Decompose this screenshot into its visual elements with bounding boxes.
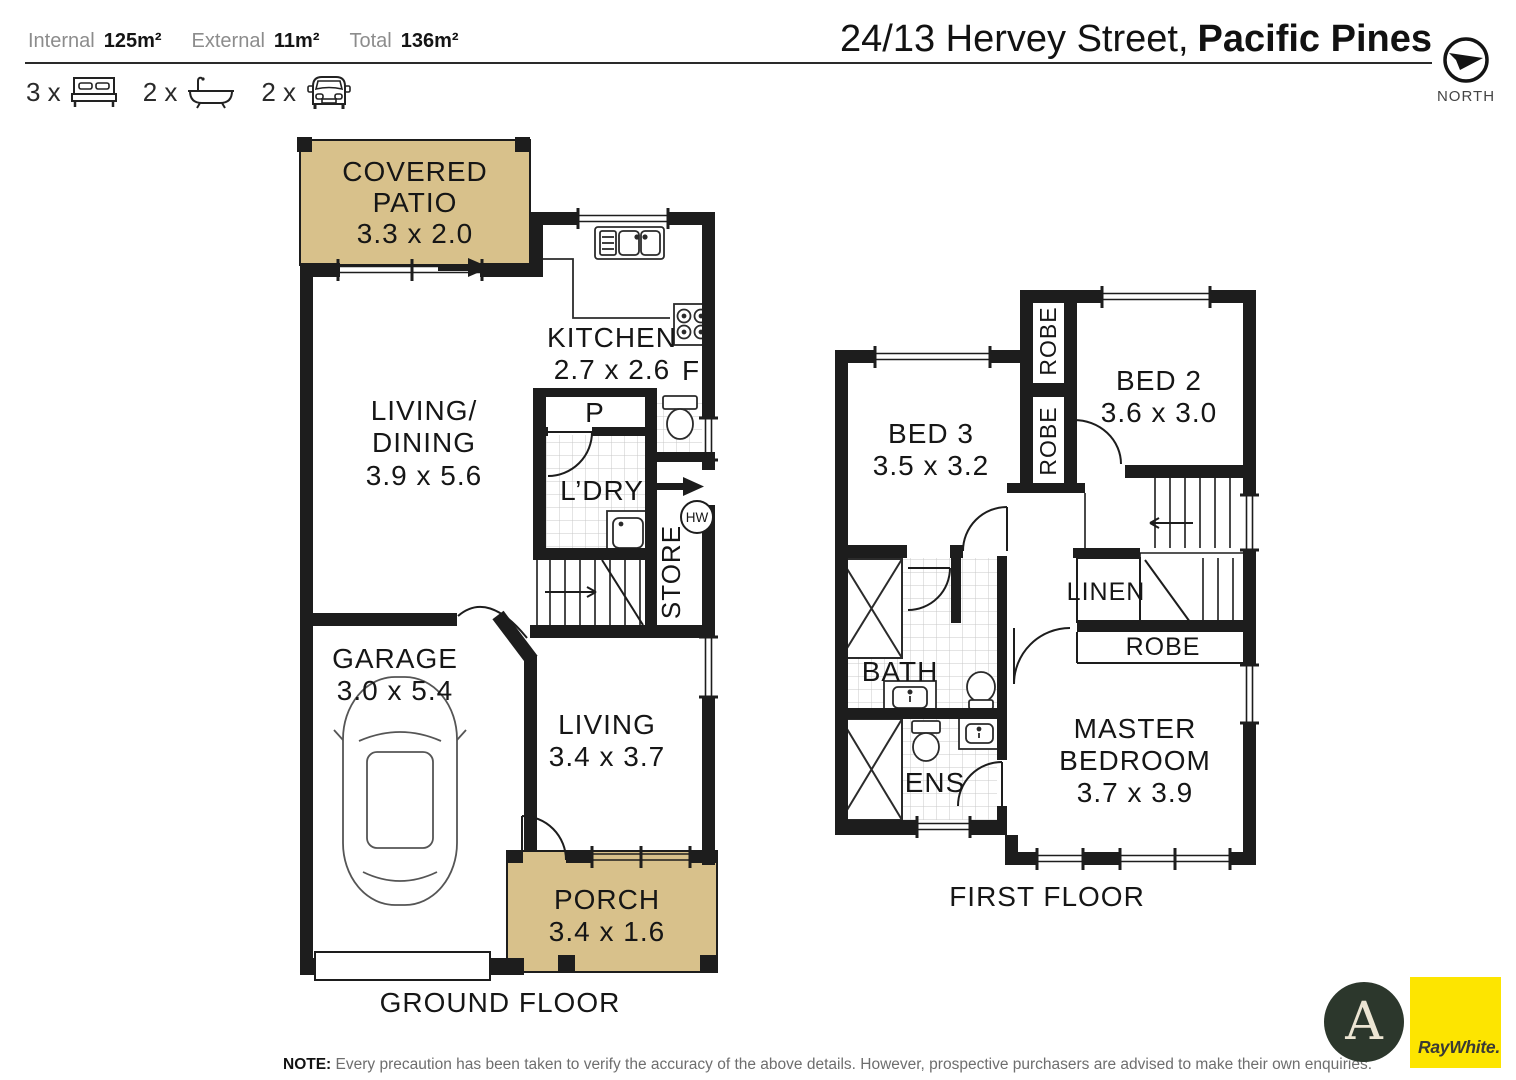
bath-toilet-icon bbox=[967, 672, 995, 709]
covered-patio-dims: 3.3 x 2.0 bbox=[357, 218, 473, 249]
kitchen-sink bbox=[595, 227, 664, 259]
bathtub-icon bbox=[841, 559, 902, 658]
agent-logo: A bbox=[1324, 982, 1404, 1062]
floorplan-page: Internal125m² External11m² Total136m² 3 … bbox=[0, 0, 1516, 1080]
porch-dims: 3.4 x 1.6 bbox=[549, 916, 665, 947]
bed3-dims: 3.5 x 3.2 bbox=[873, 450, 989, 481]
first-floor-plan: BED 3 3.5 x 3.2 BED 2 3.6 x 3.0 ROBE ROB… bbox=[835, 286, 1259, 912]
car-top-view-icon bbox=[334, 677, 466, 905]
bath-label: BATH bbox=[862, 656, 939, 687]
bed3-label: BED 3 bbox=[888, 418, 974, 449]
raywhite-logo: RayWhite. bbox=[1410, 977, 1501, 1068]
robe-master-label: ROBE bbox=[1126, 633, 1201, 661]
shower-icon bbox=[841, 719, 902, 820]
living-label: LIVING bbox=[558, 709, 656, 740]
laundry-label: L’DRY bbox=[560, 475, 644, 506]
master-dims: 3.7 x 3.9 bbox=[1077, 777, 1193, 808]
agent-monogram: A bbox=[1345, 996, 1383, 1048]
note-text: Every precaution has been taken to verif… bbox=[336, 1056, 1372, 1073]
linen-label: LINEN bbox=[1067, 578, 1146, 606]
bed2-dims: 3.6 x 3.0 bbox=[1101, 397, 1217, 428]
first-floor-title: FIRST FLOOR bbox=[949, 881, 1145, 912]
master-label2: BEDROOM bbox=[1059, 745, 1211, 776]
garage-dims: 3.0 x 5.4 bbox=[337, 675, 453, 706]
ens-label: ENS bbox=[905, 767, 966, 798]
kitchen-label: KITCHEN bbox=[547, 322, 677, 353]
pantry-label: P bbox=[585, 397, 605, 428]
ens-toilet-icon bbox=[912, 721, 940, 761]
disclaimer-note: NOTE: Every precaution has been taken to… bbox=[283, 1056, 1372, 1074]
covered-patio-label2: PATIO bbox=[373, 187, 458, 218]
living-dining-label: LIVING/ bbox=[371, 395, 478, 426]
robe-bed2-label: ROBE bbox=[1035, 306, 1061, 375]
garage-label: GARAGE bbox=[332, 643, 458, 674]
covered-patio-label: COVERED bbox=[342, 156, 487, 187]
robe-bed3-label: ROBE bbox=[1035, 406, 1061, 475]
porch-label: PORCH bbox=[554, 884, 660, 915]
master-label: MASTER bbox=[1074, 713, 1197, 744]
living-dining-dims: 3.9 x 5.6 bbox=[366, 460, 482, 491]
garage-door bbox=[315, 952, 490, 980]
hot-water-label: HW bbox=[686, 510, 709, 525]
kitchen-dims: 2.7 x 2.6 bbox=[554, 354, 670, 385]
living-dining-label2: DINING bbox=[372, 427, 476, 458]
raywhite-wordmark: RayWhite. bbox=[1418, 1037, 1500, 1058]
store-label: STORE bbox=[656, 525, 686, 619]
note-label: NOTE: bbox=[283, 1056, 331, 1073]
ground-stairs bbox=[537, 560, 643, 625]
kitchen-bench bbox=[543, 259, 670, 318]
fridge-label: F bbox=[682, 355, 700, 386]
ground-floor-title: GROUND FLOOR bbox=[380, 987, 621, 1018]
washing-machine-icon bbox=[607, 511, 649, 554]
ground-floor-plan: HW COVERED PATIO 3.3 x 2.0 LIVING/ DININ… bbox=[297, 137, 718, 1018]
ens-vanity-icon bbox=[959, 718, 1000, 749]
bed2-label: BED 2 bbox=[1116, 365, 1202, 396]
storage-outlines bbox=[1032, 295, 1243, 663]
living-dims: 3.4 x 3.7 bbox=[549, 741, 665, 772]
floorplans: HW COVERED PATIO 3.3 x 2.0 LIVING/ DININ… bbox=[0, 0, 1516, 1080]
